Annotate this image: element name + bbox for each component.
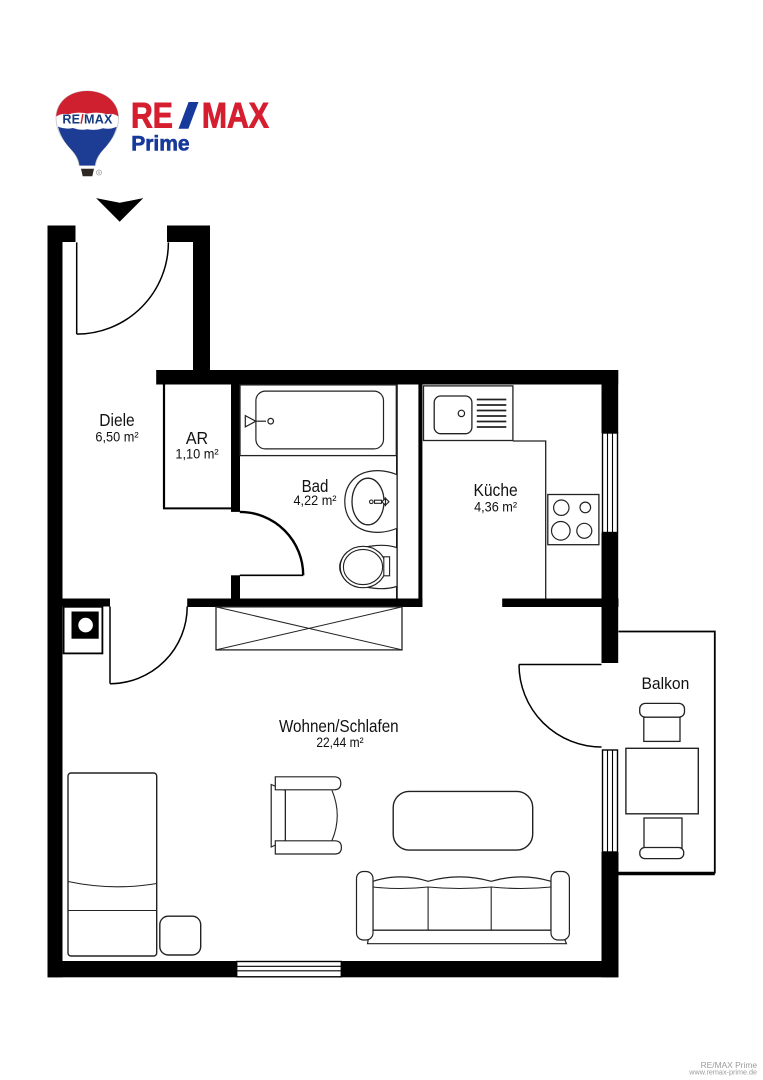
svg-text:Balkon: Balkon — [641, 675, 689, 693]
svg-text:6,50 m²: 6,50 m² — [95, 430, 139, 445]
svg-text:22,44 m²: 22,44 m² — [316, 735, 364, 750]
svg-text:RE: RE — [131, 95, 173, 135]
svg-text:Wohnen/Schlafen: Wohnen/Schlafen — [279, 716, 399, 736]
svg-text:R: R — [98, 171, 101, 175]
svg-text:Diele: Diele — [99, 410, 134, 430]
svg-text:AR: AR — [186, 428, 208, 448]
svg-text:RE/MAX: RE/MAX — [62, 113, 113, 127]
svg-text:4,36 m²: 4,36 m² — [474, 500, 517, 515]
svg-text:4,22 m²: 4,22 m² — [294, 493, 337, 508]
svg-text:1,10 m²: 1,10 m² — [175, 447, 219, 462]
svg-text:Küche: Küche — [473, 480, 517, 500]
svg-text:www.remax-prime.de: www.remax-prime.de — [688, 1068, 757, 1077]
svg-text:MAX: MAX — [202, 95, 269, 135]
svg-text:Prime: Prime — [131, 133, 189, 156]
